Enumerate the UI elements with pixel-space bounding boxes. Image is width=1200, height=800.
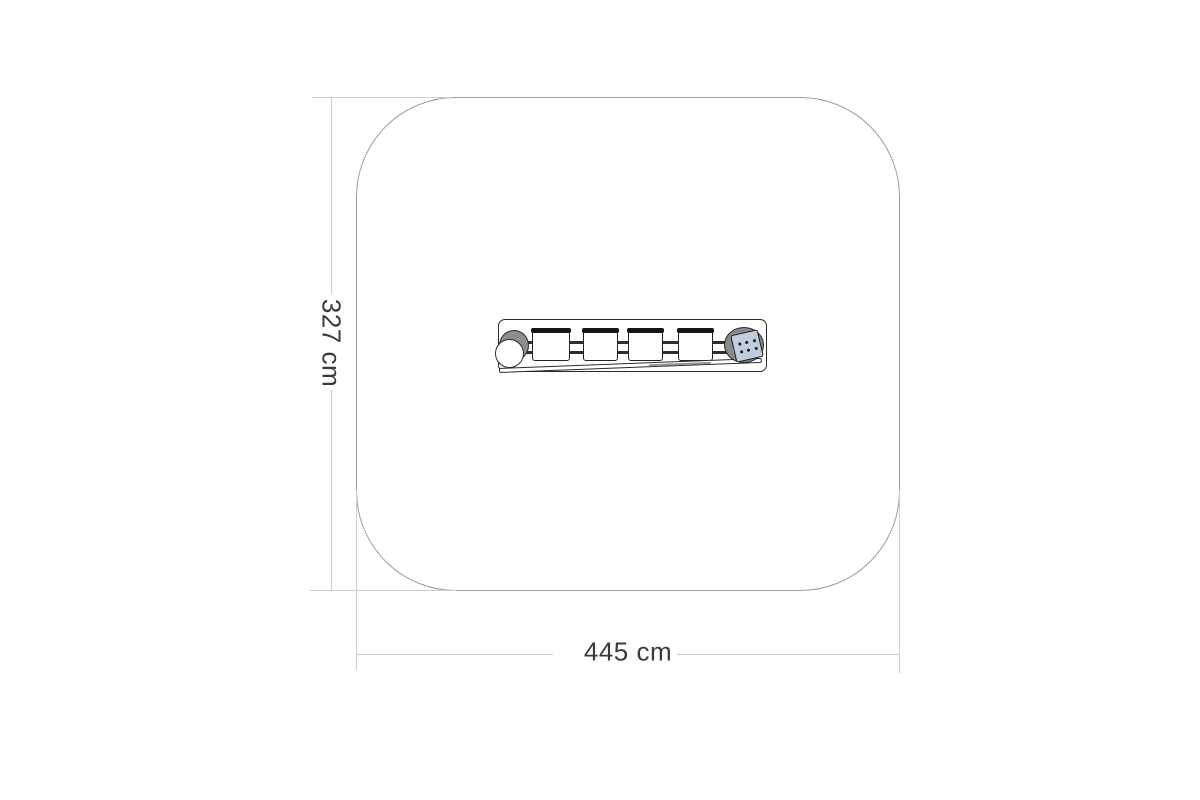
dice-dot xyxy=(745,340,749,344)
dice-panel-icon xyxy=(730,329,764,363)
dice-dot xyxy=(747,348,751,352)
horizontal-dimension-line-left xyxy=(357,654,553,655)
dice-dot xyxy=(739,350,743,354)
extension-line-left xyxy=(356,490,357,670)
plan-drawing: 327 cm 445 cm xyxy=(0,0,1200,800)
vertical-dimension-line-upper xyxy=(331,97,332,294)
dice-dot xyxy=(738,342,742,346)
extension-line-right xyxy=(899,490,900,673)
cylinder-front-face xyxy=(495,339,524,368)
extension-line-top xyxy=(312,97,450,98)
balance-pod xyxy=(532,328,570,361)
vertical-dimension-line-lower xyxy=(331,390,332,591)
balance-pod xyxy=(678,328,713,361)
horizontal-dimension-line-right xyxy=(677,654,899,655)
width-dimension-label: 445 cm xyxy=(584,637,672,668)
dice-dot xyxy=(754,346,758,350)
dice-dot xyxy=(752,338,756,342)
height-dimension-label: 327 cm xyxy=(316,299,347,387)
balance-pod xyxy=(583,328,618,361)
balance-pod xyxy=(628,328,663,361)
